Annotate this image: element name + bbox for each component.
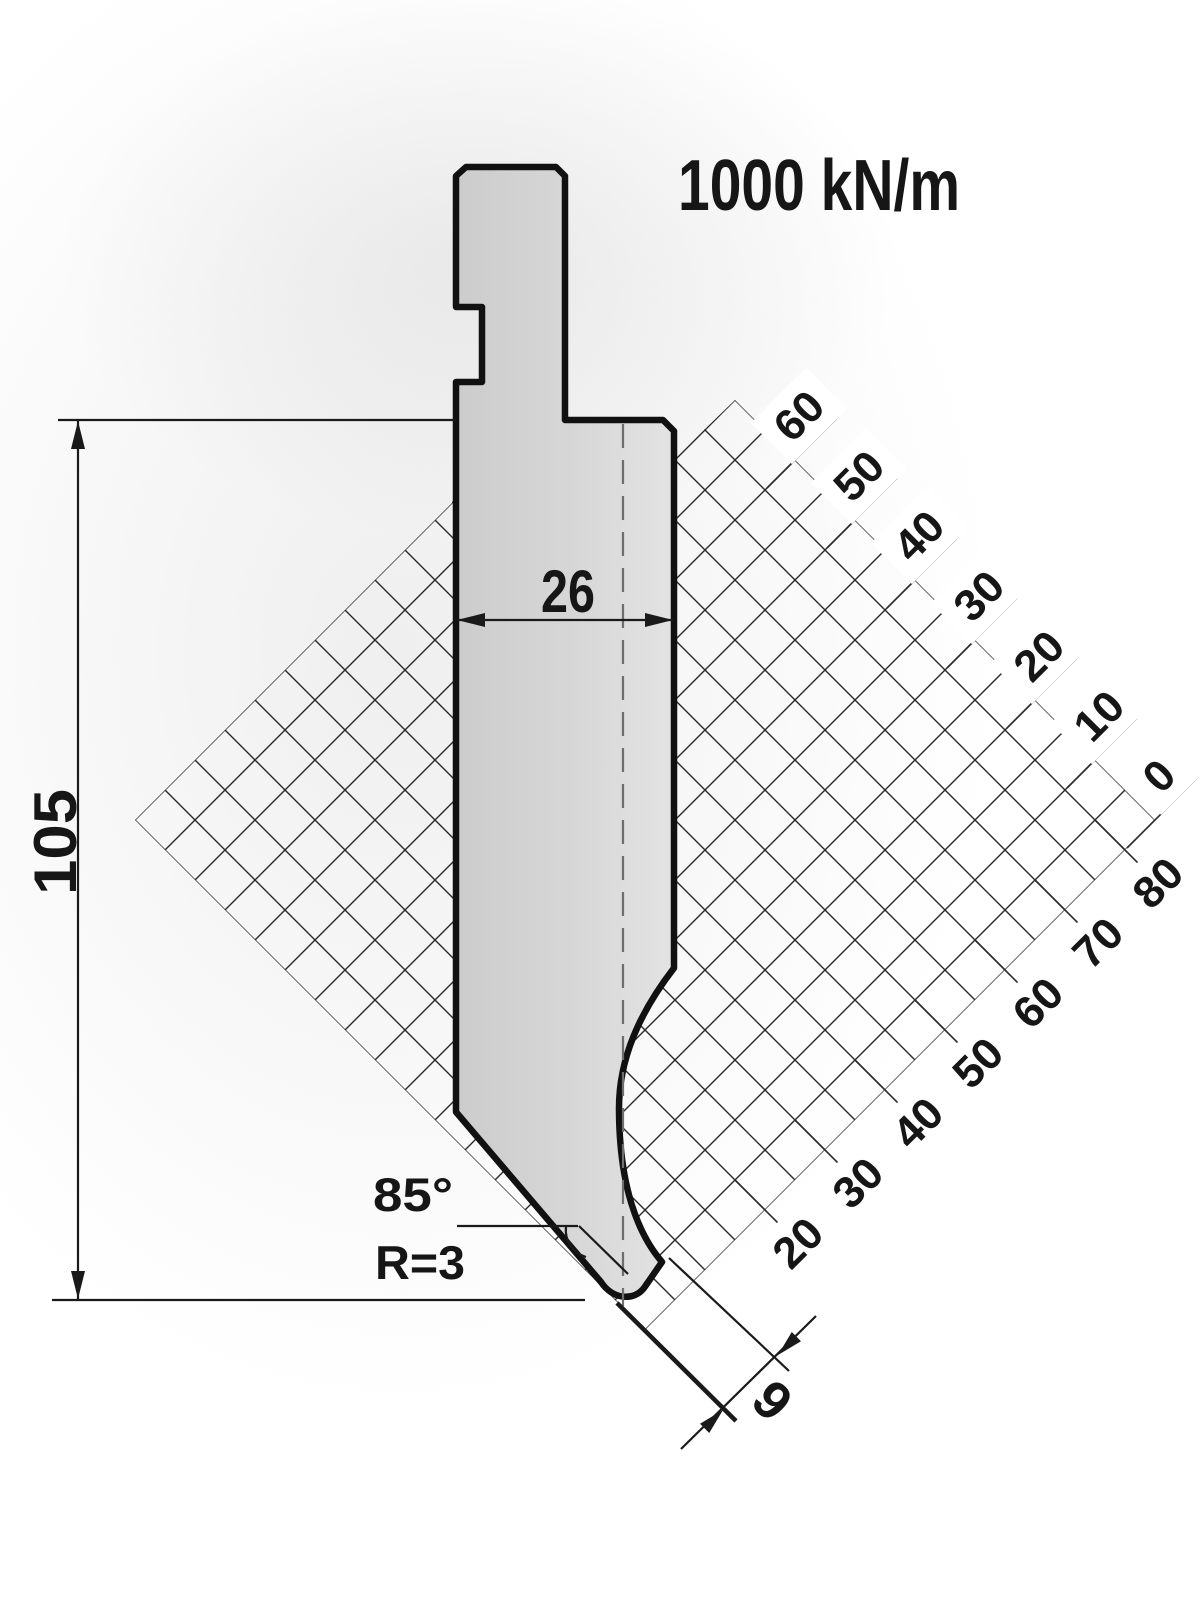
force-rating-label: 1000 kN/m	[678, 146, 960, 226]
tip-radius-value: R=3	[375, 1236, 465, 1289]
width-value: 26	[541, 558, 595, 625]
tip-angle-value: 85°	[373, 1168, 453, 1221]
technical-drawing-canvas: 0102030405060 20304050607080 105 26 85° …	[0, 0, 1200, 1600]
technical-drawing-page: 0102030405060 20304050607080 105 26 85° …	[0, 0, 1200, 1600]
height-value: 105	[22, 789, 89, 895]
tip-width-value: 9	[740, 1369, 804, 1433]
